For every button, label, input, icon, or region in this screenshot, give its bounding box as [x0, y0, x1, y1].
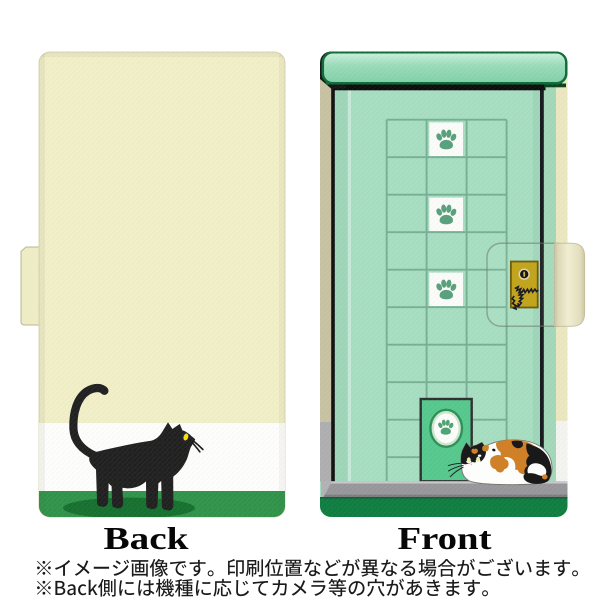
- svg-text:Front: Front: [398, 521, 493, 556]
- svg-text:Back: Back: [104, 521, 190, 556]
